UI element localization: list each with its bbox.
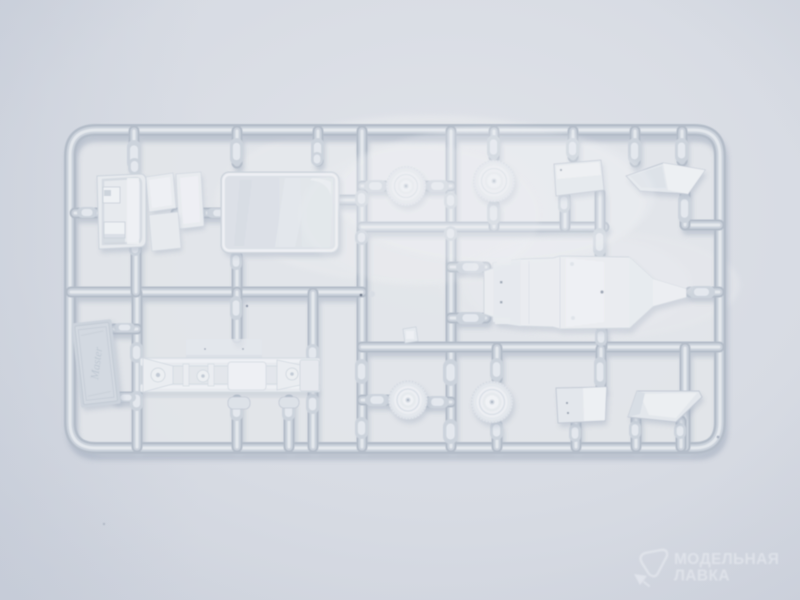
svg-text:ЛАВКА: ЛАВКА <box>674 568 730 585</box>
svg-text:МОДЕЛЬНАЯ: МОДЕЛЬНАЯ <box>674 551 779 568</box>
